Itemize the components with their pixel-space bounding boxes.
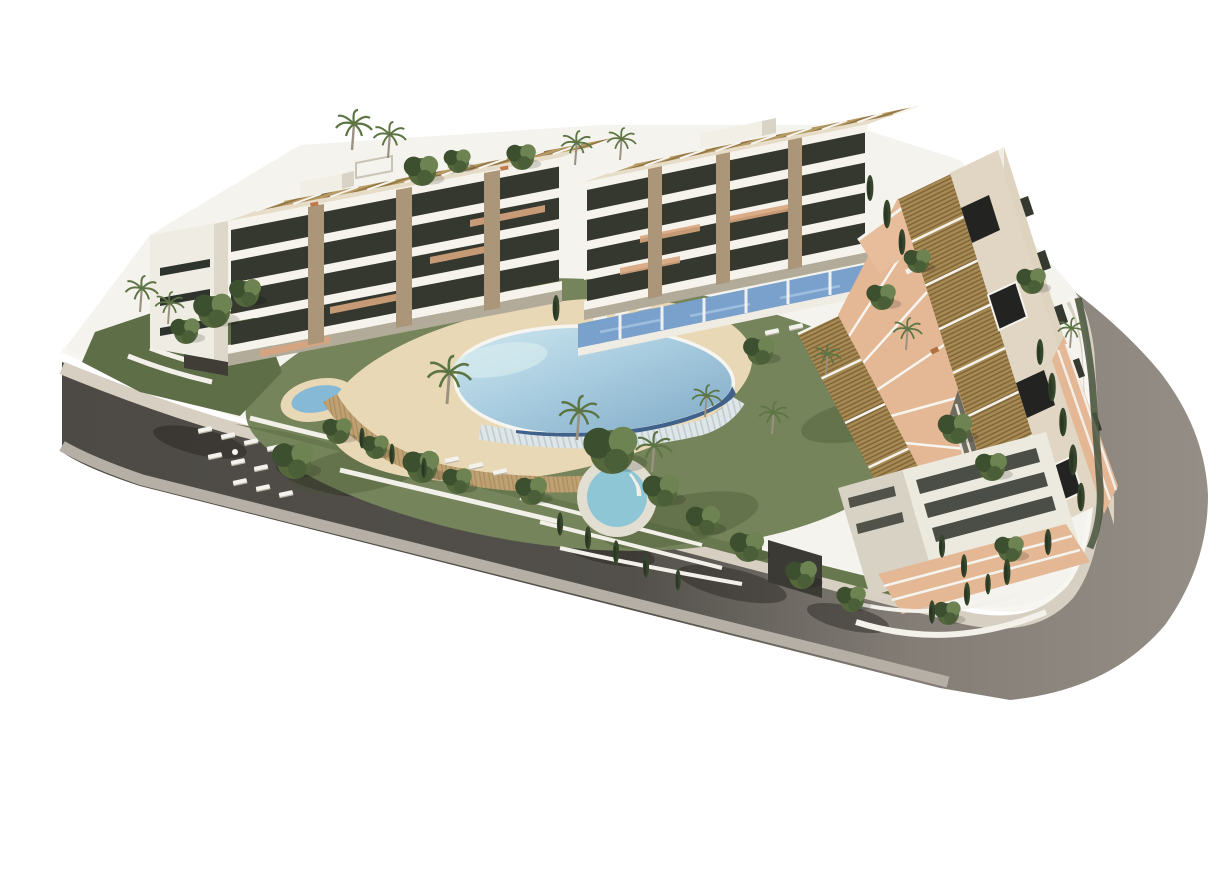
render-viewport	[0, 0, 1221, 877]
jacuzzi-water	[587, 467, 647, 527]
scene-render	[0, 0, 1221, 877]
garden-table	[232, 449, 238, 455]
gable-shade	[214, 221, 228, 362]
